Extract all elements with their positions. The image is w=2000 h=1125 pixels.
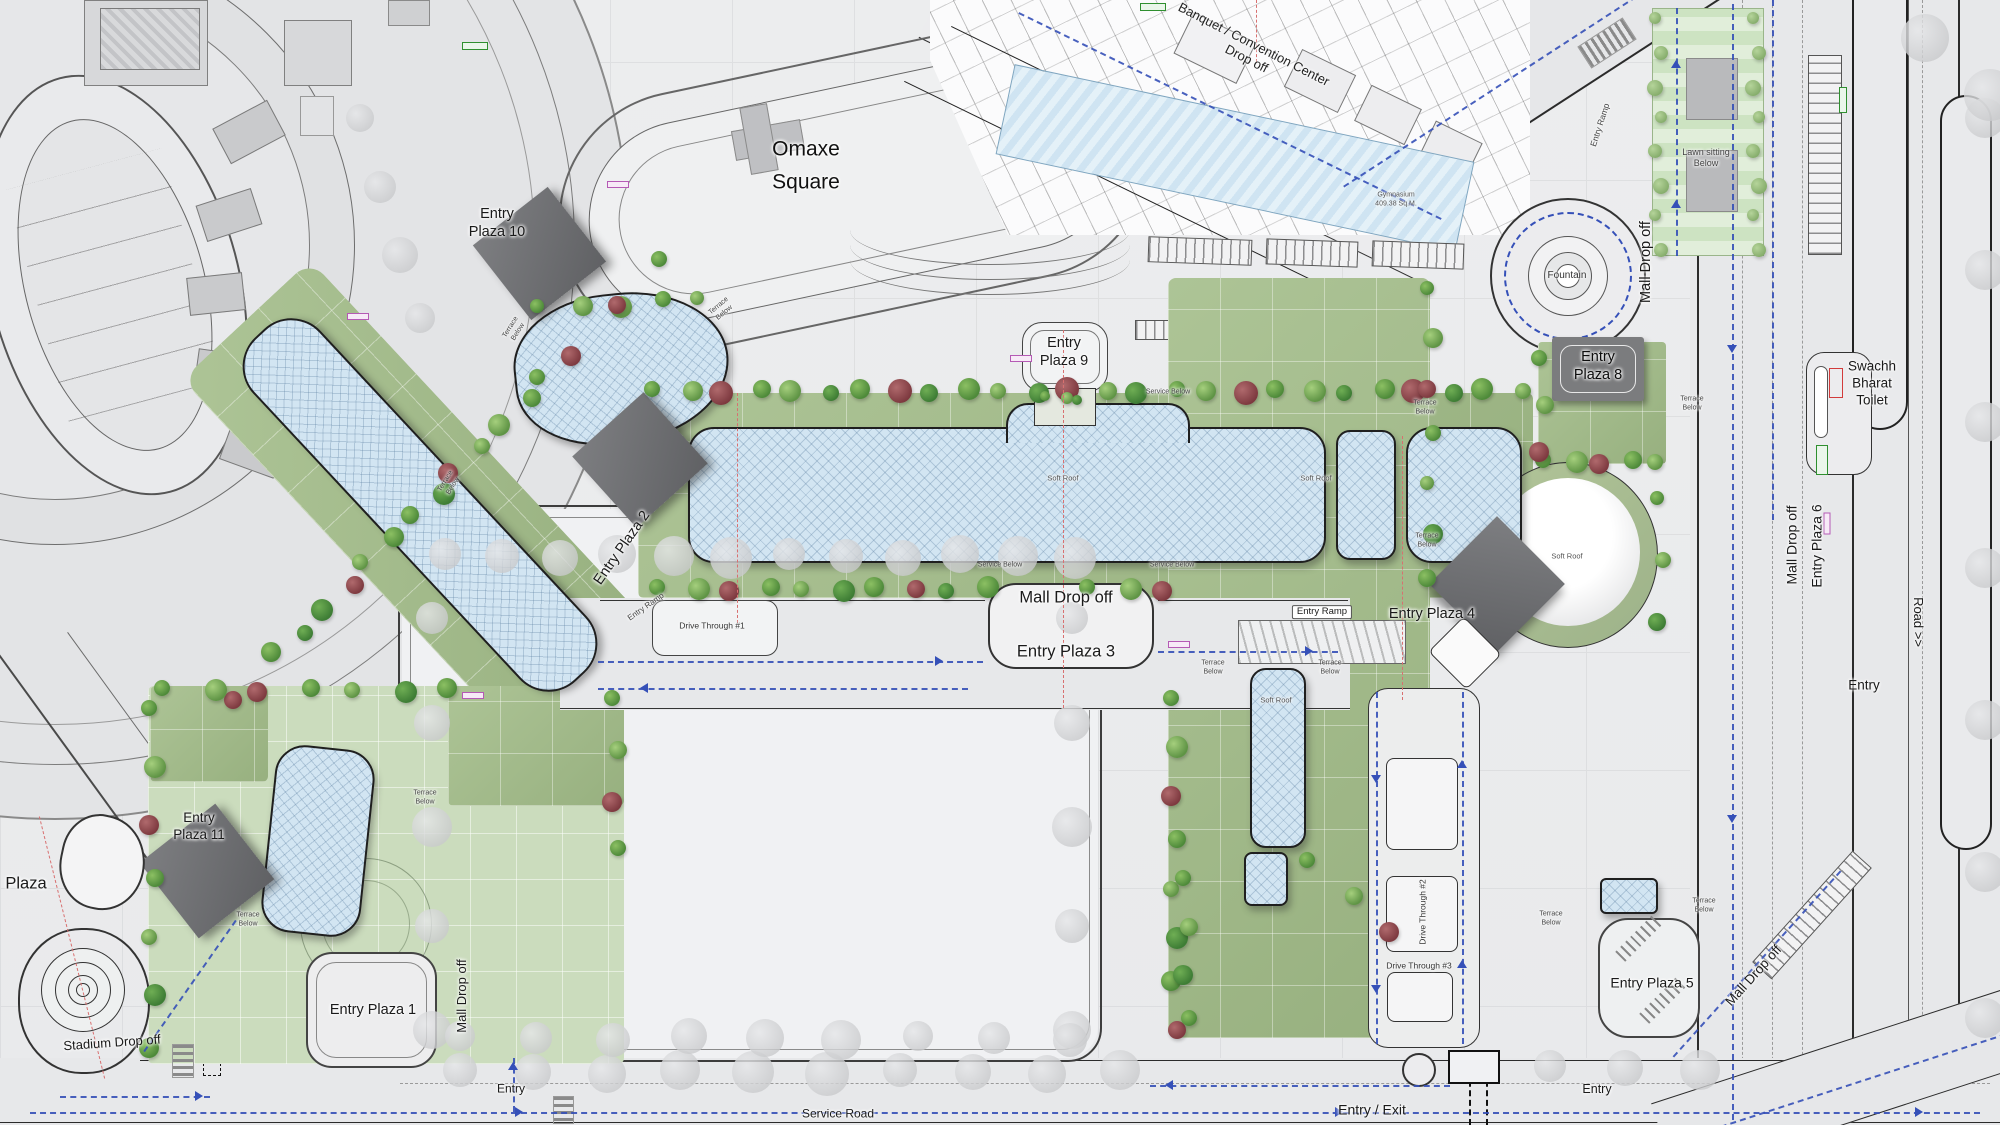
label-service-below-3: Service Below: [1150, 562, 1194, 571]
label-drive-through-1: Drive Through #1: [679, 621, 745, 632]
label-stadium-drop-off: Stadium Drop off: [63, 1032, 161, 1055]
label-service-road: Service Road: [802, 1107, 874, 1122]
label-service-below-1: Service Below: [1146, 389, 1190, 398]
label-terrace-below-1: Terrace Below: [501, 315, 528, 344]
annotation-layer: Banquet / Convention Center Drop offOmax…: [0, 0, 2000, 1125]
label-terrace-below-2: Terrace Below: [707, 296, 736, 324]
label-entry-plaza-2: Entry Plaza 2: [590, 507, 654, 588]
label-terrace-below-5: Terrace Below: [236, 911, 259, 929]
label-entry-plaza-10: Entry Plaza 10: [469, 205, 525, 241]
label-terrace-below-3: Terrace Below: [413, 789, 436, 807]
label-mall-drop-off-center: Mall Drop off: [1019, 588, 1112, 609]
label-mall-drop-off-6: Mall Drop off: [1783, 505, 1801, 584]
label-terrace-below-8: Terrace Below: [1201, 659, 1224, 677]
label-entry-plaza-9: Entry Plaza 9: [1040, 334, 1088, 370]
label-drive-through-2: Drive Through #2: [1418, 879, 1429, 945]
label-entry-exit: Entry / Exit: [1338, 1101, 1406, 1119]
label-mall-drop-off-southeast: Mall Drop off: [1722, 942, 1786, 1010]
site-plan: Banquet / Convention Center Drop offOmax…: [0, 0, 2000, 1125]
label-terrace-below-10: Terrace Below: [1680, 395, 1703, 413]
label-service-below-2: Service Below: [978, 562, 1022, 571]
label-entry-plaza-5: Entry Plaza 5: [1610, 974, 1693, 992]
label-entry-right: Entry: [1848, 678, 1880, 695]
label-terrace-below-7: Terrace Below: [1415, 532, 1438, 550]
label-soft-roof-1: Soft Roof: [1047, 473, 1078, 482]
label-soft-roof-2: Soft Roof: [1300, 473, 1331, 482]
label-entry-ramp-northeast: Entry Ramp: [1588, 102, 1612, 148]
label-swachh-bharat-toilet: Swachh Bharat Toilet: [1848, 359, 1896, 410]
label-entry-plaza-4: Entry Plaza 4: [1389, 605, 1475, 623]
label-mall-drop-off-northeast: Mall Drop off: [1637, 221, 1655, 303]
label-entry-plaza-11: Entry Plaza 11: [173, 810, 225, 844]
label-banquet-convention-drop-off: Banquet / Convention Center Drop off: [1168, 0, 1332, 105]
label-terrace-below-6: Terrace Below: [1413, 399, 1436, 417]
label-entry-plaza-8: Entry Plaza 8: [1574, 348, 1622, 384]
label-fountain: Fountain: [1548, 270, 1587, 283]
label-entry-plaza-1: Entry Plaza 1: [330, 1001, 416, 1019]
label-plaza-left: Plaza: [5, 874, 46, 895]
label-soft-roof-wing: Soft Roof: [1260, 695, 1291, 704]
label-soft-roof-dome: Soft Roof: [1551, 551, 1582, 560]
label-mall-drop-off-southwest: Mall Drop off: [454, 959, 470, 1032]
label-terrace-below-11: Terrace Below: [1539, 910, 1562, 928]
label-omaxe-square: Omaxe Square: [772, 133, 840, 198]
label-lawn-sitting-below: Lawn sitting Below: [1682, 147, 1730, 170]
label-gymnasium: Gymnasium 409.38 Sq.M.: [1375, 191, 1417, 209]
label-entry-ramp-center: Entry Ramp: [1292, 605, 1352, 619]
label-entry-southwest: Entry: [497, 1082, 525, 1097]
label-entry-southeast: Entry: [1582, 1082, 1611, 1098]
label-road-label: Road >>: [1910, 597, 1926, 647]
label-drive-through-3: Drive Through #3: [1386, 961, 1452, 972]
label-terrace-below-4: Terrace Below: [436, 469, 463, 498]
label-entry-plaza-3: Entry Plaza 3: [1017, 642, 1115, 663]
label-terrace-below-9: Terrace Below: [1318, 659, 1341, 677]
label-entry-ramp-left: Entry Ramp: [626, 591, 666, 623]
label-entry-plaza-6: Entry Plaza 6: [1808, 504, 1826, 587]
label-terrace-below-12: Terrace Below: [1692, 897, 1715, 915]
